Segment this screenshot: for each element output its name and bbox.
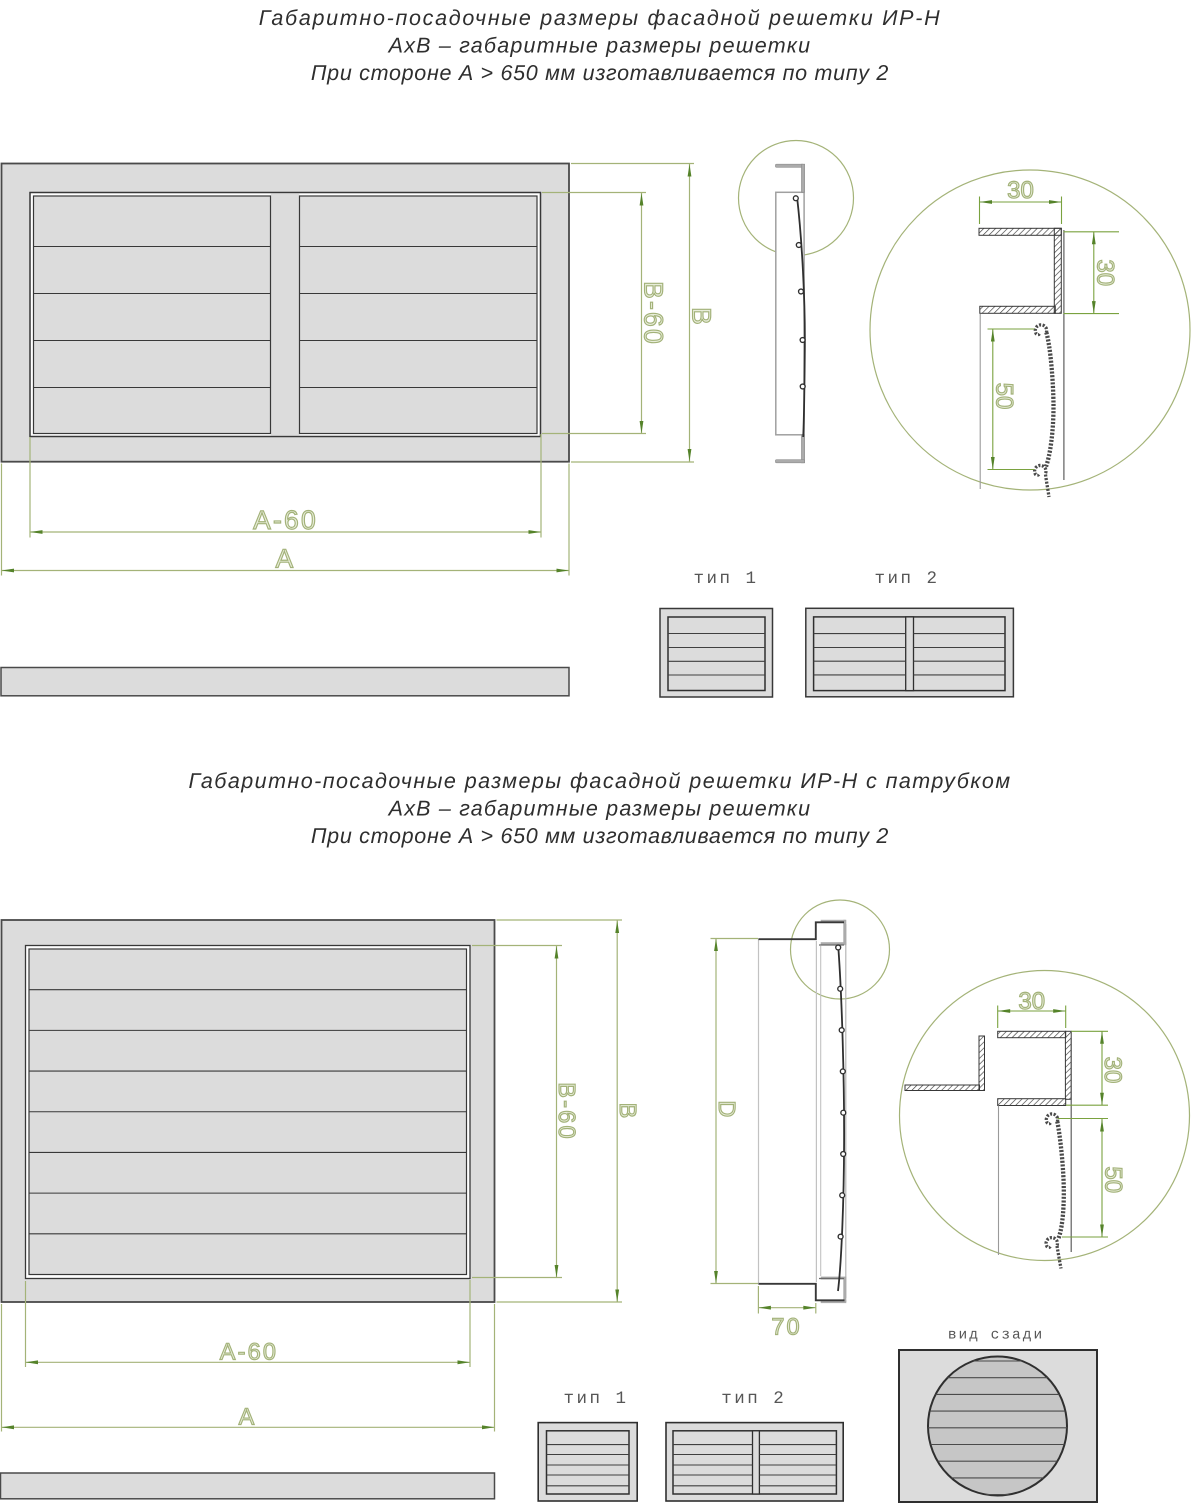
svg-text:70: 70 <box>771 1314 801 1340</box>
svg-text:30: 30 <box>1091 259 1118 286</box>
svg-text:30: 30 <box>1007 177 1034 204</box>
svg-text:30: 30 <box>1099 1057 1126 1084</box>
svg-text:A: A <box>276 544 296 574</box>
svg-text:АхВ – габаритные размеры решет: АхВ – габаритные размеры решетки <box>387 34 812 58</box>
svg-text:вид сзади: вид сзади <box>948 1328 1044 1344</box>
svg-text:B: B <box>615 1103 641 1121</box>
svg-text:A: A <box>239 1404 257 1430</box>
svg-text:50: 50 <box>990 383 1017 410</box>
svg-text:B: B <box>687 307 717 327</box>
svg-text:D: D <box>714 1100 740 1119</box>
svg-text:При стороне А > 650 мм изготав: При стороне А > 650 мм изготавливается п… <box>311 61 889 85</box>
svg-text:АхВ – габаритные размеры решет: АхВ – габаритные размеры решетки <box>387 797 812 821</box>
svg-text:B-60: B-60 <box>639 281 669 346</box>
svg-text:Габаритно-посадочные размеры ф: Габаритно-посадочные размеры фасадной ре… <box>259 6 942 30</box>
svg-text:A-60: A-60 <box>253 505 318 535</box>
svg-text:B-60: B-60 <box>554 1082 580 1140</box>
svg-text:A-60: A-60 <box>220 1339 278 1365</box>
svg-text:30: 30 <box>1018 988 1045 1015</box>
svg-text:тип 2: тип 2 <box>874 569 939 589</box>
svg-text:тип 2: тип 2 <box>721 1389 786 1409</box>
svg-text:При стороне А > 650 мм изготав: При стороне А > 650 мм изготавливается п… <box>311 824 889 848</box>
svg-text:тип 1: тип 1 <box>563 1389 628 1409</box>
svg-text:тип 1: тип 1 <box>693 569 758 589</box>
svg-text:Габаритно-посадочные размеры ф: Габаритно-посадочные размеры фасадной ре… <box>188 769 1011 793</box>
svg-text:50: 50 <box>1100 1166 1127 1193</box>
